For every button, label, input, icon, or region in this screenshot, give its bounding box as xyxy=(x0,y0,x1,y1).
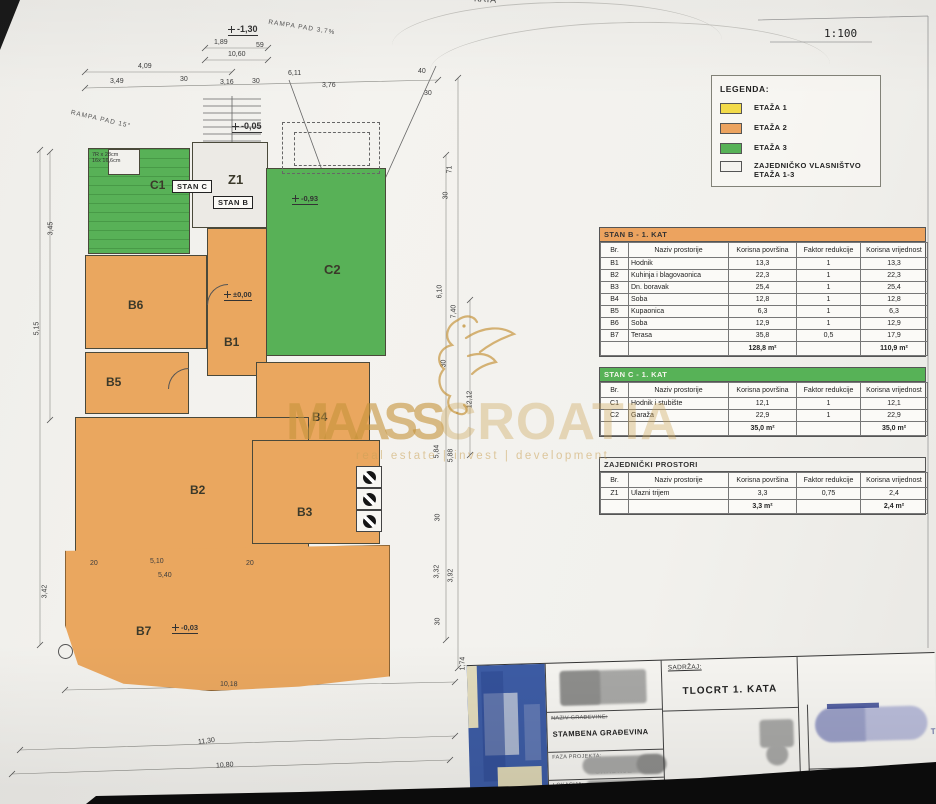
room-label-b5: B5 xyxy=(106,375,121,389)
table-header-cell: Korisna vrijednost xyxy=(861,383,928,398)
elevation-cross-icon xyxy=(228,26,235,33)
elevation-value: ±0,00 xyxy=(233,290,252,299)
room-label-c2: C2 xyxy=(324,262,341,277)
table-cell: Z1 xyxy=(601,488,629,500)
redacted-faza-dark xyxy=(636,754,667,775)
table-header-cell: Naziv prostorije xyxy=(629,243,729,258)
room-label-b6: B6 xyxy=(128,298,143,312)
room-label-b1: B1 xyxy=(224,335,239,349)
table-cell: C1 xyxy=(601,398,629,410)
dimension-label: 3,45 xyxy=(47,222,54,236)
utility-meter xyxy=(356,488,382,510)
floorplan-sheet: KATA 1:100 7R x 28cm 16x 16,6cm xyxy=(0,0,936,804)
table-cell: B3 xyxy=(601,282,629,294)
table-cell: B2 xyxy=(601,270,629,282)
table-cell xyxy=(629,342,729,356)
meter-dial-icon xyxy=(363,515,376,528)
table-cell: 35,8 xyxy=(729,330,797,342)
dimension-label: 59 xyxy=(256,42,264,49)
table-cell: 25,4 xyxy=(729,282,797,294)
legend-item: ZAJEDNIČKO VLASNIŠTVO ETAŽA 1-3 xyxy=(720,161,861,180)
room-label-b2: B2 xyxy=(190,483,205,497)
logo-patch xyxy=(524,704,542,760)
table-cell: 12,9 xyxy=(729,318,797,330)
sheet-title: TLOCRT 1. KATA xyxy=(662,683,797,698)
table-stan-c: STAN C - 1. KATBr.Naziv prostorijeKorisn… xyxy=(599,367,926,437)
dimension-label: 5,15 xyxy=(33,322,40,336)
table-cell: Ulazni trijem xyxy=(629,488,729,500)
room-label-b3: B3 xyxy=(297,505,312,519)
dimension-label: 30 xyxy=(434,514,441,522)
table-cell: B7 xyxy=(601,330,629,342)
legend-label-line1: ZAJEDNIČKO VLASNIŠTVO xyxy=(754,161,861,170)
redacted-stamp-dark xyxy=(815,707,866,742)
table-cell: 12,8 xyxy=(729,294,797,306)
table-cell: 1 xyxy=(797,258,861,270)
table-stan-b: STAN B - 1. KATBr.Naziv prostorijeKorisn… xyxy=(599,227,926,357)
content-divider xyxy=(663,707,798,712)
unit-tag-stan-b: STAN B xyxy=(213,196,253,209)
area-table: Br.Naziv prostorijeKorisna površinaFakto… xyxy=(600,242,928,356)
table-cell: 3,3 xyxy=(729,488,797,500)
table-cell: B5 xyxy=(601,306,629,318)
meter-dial-icon xyxy=(363,471,376,484)
room-label-b7: B7 xyxy=(136,624,151,638)
dimension-label: 30 xyxy=(440,360,447,368)
table-title: ZAJEDNIČKI PROSTORI xyxy=(600,458,925,472)
table-cell: Soba xyxy=(629,294,729,306)
room-label-z1: Z1 xyxy=(228,172,243,187)
table-cell xyxy=(797,342,861,356)
elevation-cross-icon xyxy=(232,123,239,130)
dimension-label: 30 xyxy=(442,192,449,200)
room-label-b4: B4 xyxy=(312,410,327,424)
company-logo-redacted xyxy=(467,664,549,801)
dimension-label: 12,12 xyxy=(466,391,473,409)
legend-label: ETAŽA 3 xyxy=(754,143,787,152)
table-cell: Terasa xyxy=(629,330,729,342)
table-cell: 17,9 xyxy=(861,330,928,342)
dimension-label: 40 xyxy=(418,68,426,75)
table-cell: C2 xyxy=(601,410,629,422)
table-cell: 1 xyxy=(797,318,861,330)
elevation-marker: ±0,00 xyxy=(224,290,252,301)
table-cell: 6,3 xyxy=(861,306,928,318)
utility-meter xyxy=(356,510,382,532)
table-cell: Kuhinja i blagovaonica xyxy=(629,270,729,282)
elevation-marker: -0,03 xyxy=(172,623,198,634)
table-cell: B4 xyxy=(601,294,629,306)
elevation-marker: -0,93 xyxy=(292,194,318,205)
table-common-areas: ZAJEDNIČKI PROSTORIBr.Naziv prostorijeKo… xyxy=(599,457,926,515)
table-cell: 13,3 xyxy=(861,258,928,270)
area-table: Br.Naziv prostorijeKorisna površinaFakto… xyxy=(600,382,928,436)
dimension-label: 30 xyxy=(434,618,441,626)
right-edge-text-fragment: T xyxy=(931,727,936,736)
table-header-cell: Korisna površina xyxy=(729,243,797,258)
dimension-label: 5,84 xyxy=(433,445,440,459)
dimension-label: 20 xyxy=(246,560,254,567)
table-title: STAN B - 1. KAT xyxy=(600,228,925,242)
elevation-marker: -0,05 xyxy=(232,121,262,133)
table-header-cell: Korisna vrijednost xyxy=(861,473,928,488)
legend-label: ZAJEDNIČKO VLASNIŠTVO ETAŽA 1-3 xyxy=(754,161,861,180)
table-cell xyxy=(629,422,729,436)
table-cell: 12,9 xyxy=(861,318,928,330)
elevation-value: -1,30 xyxy=(237,24,258,34)
table-cell: 1 xyxy=(797,294,861,306)
table-cell: 1 xyxy=(797,306,861,318)
dimension-label: 10,60 xyxy=(228,51,246,58)
elevation-value: -0,93 xyxy=(301,194,318,203)
elevation-value: -0,03 xyxy=(181,623,198,632)
drawing-scale: 1:100 xyxy=(824,27,857,40)
dimension-label: 5,88 xyxy=(447,449,454,463)
table-cell: Hodnik xyxy=(629,258,729,270)
dimension-label: 6,10 xyxy=(436,285,443,299)
field-divider xyxy=(548,749,663,753)
table-cell xyxy=(601,422,629,436)
logo-patch xyxy=(481,671,506,782)
table-header-cell: Korisna vrijednost xyxy=(861,243,928,258)
table-cell: Hodnik i stubište xyxy=(629,398,729,410)
redacted-investor-dark xyxy=(560,670,601,705)
elevation-cross-icon xyxy=(292,195,299,202)
dimension-label: 3,76 xyxy=(322,82,336,89)
table-cell: 2,4 m² xyxy=(861,500,928,514)
stair-dimension-note: 7R x 28cm 16x 16,6cm xyxy=(92,152,120,165)
redacted-content-round xyxy=(766,743,789,766)
table-header-cell: Br. xyxy=(601,473,629,488)
table-cell: 128,8 m² xyxy=(729,342,797,356)
table-header-cell: Br. xyxy=(601,243,629,258)
table-cell: 22,3 xyxy=(729,270,797,282)
legend-swatch-etaza2 xyxy=(720,123,742,134)
room-b6 xyxy=(85,255,207,349)
elevation-value: -0,05 xyxy=(241,121,262,131)
table-cell: 1 xyxy=(797,398,861,410)
table-cell: 3,3 m² xyxy=(729,500,797,514)
dimension-label: 3,92 xyxy=(447,569,454,583)
dimension-label: 5,10 xyxy=(150,558,164,565)
table-cell: 22,3 xyxy=(861,270,928,282)
room-b7-terrace xyxy=(65,545,390,691)
table-cell: 110,9 m² xyxy=(861,342,928,356)
legend-swatch-etaza1 xyxy=(720,103,742,114)
table-cell: 12,1 xyxy=(861,398,928,410)
table-cell: Kupaonica xyxy=(629,306,729,318)
dimension-label: 30 xyxy=(180,76,188,83)
table-cell: 13,3 xyxy=(729,258,797,270)
legend-label: ETAŽA 2 xyxy=(754,123,787,132)
table-cell xyxy=(601,342,629,356)
dimension-label: 3,32 xyxy=(433,565,440,579)
dimension-label: 71 xyxy=(446,166,453,174)
stair-note-line2: 16x 16,6cm xyxy=(92,158,120,164)
titleblock-fields-cell: NAZIV GRAĐEVINE: STAMBENA GRAĐEVINA FAZA… xyxy=(545,661,665,799)
table-cell: 22,9 xyxy=(729,410,797,422)
table-header-cell: Faktor redukcije xyxy=(797,243,861,258)
table-cell: 1 xyxy=(797,270,861,282)
table-cell: Dn. boravak xyxy=(629,282,729,294)
dimension-label: 6,11 xyxy=(288,70,301,77)
elevation-marker: -1,30 xyxy=(228,24,258,36)
dimension-label: 5,40 xyxy=(158,572,172,579)
dimension-label: 10,80 xyxy=(216,761,234,769)
dimension-label: 30 xyxy=(424,90,432,97)
table-cell xyxy=(601,500,629,514)
legend-item: ETAŽA 1 xyxy=(720,103,787,114)
dimension-label: 1,74 xyxy=(459,657,466,671)
dimension-label: 3,42 xyxy=(41,585,48,599)
dimension-label: 1,89 xyxy=(214,39,228,46)
utility-meter xyxy=(356,466,382,488)
room-label-c1: C1 xyxy=(150,178,165,192)
table-cell: 12,8 xyxy=(861,294,928,306)
table-cell: 1 xyxy=(797,282,861,294)
table-cell: Soba xyxy=(629,318,729,330)
dimension-label: 3,16 xyxy=(220,79,234,86)
table-cell: 2,4 xyxy=(861,488,928,500)
ramp-dashed-outline-inner xyxy=(294,132,370,166)
table-cell: 35,0 m² xyxy=(729,422,797,436)
dimension-label: 10,18 xyxy=(220,681,238,688)
table-cell: 6,3 xyxy=(729,306,797,318)
building-name: STAMBENA GRAĐEVINA xyxy=(553,727,649,739)
table-cell xyxy=(797,500,861,514)
table-cell: 0,75 xyxy=(797,488,861,500)
legend-item: ETAŽA 3 xyxy=(720,143,787,154)
table-header-cell: Naziv prostorije xyxy=(629,383,729,398)
legend-swatch-common xyxy=(720,161,742,172)
table-cell: 0,5 xyxy=(797,330,861,342)
table-cell: B6 xyxy=(601,318,629,330)
logo-patch xyxy=(467,666,479,728)
table-cell: 22,9 xyxy=(861,410,928,422)
table-cell xyxy=(629,500,729,514)
table-header-cell: Naziv prostorije xyxy=(629,473,729,488)
table-header-cell: Faktor redukcije xyxy=(797,473,861,488)
field-label-naziv: NAZIV GRAĐEVINE: xyxy=(551,714,608,722)
elevation-cross-icon xyxy=(172,624,179,631)
legend-title: LEGENDA: xyxy=(720,84,880,94)
dimension-label: 20 xyxy=(90,560,98,567)
legend-item: ETAŽA 2 xyxy=(720,123,787,134)
table-cell: 12,1 xyxy=(729,398,797,410)
table-header-cell: Faktor redukcije xyxy=(797,383,861,398)
table-cell: Garaža xyxy=(629,410,729,422)
dimension-label: 7,40 xyxy=(450,305,457,319)
table-cell: 25,4 xyxy=(861,282,928,294)
legend: LEGENDA: ETAŽA 1 ETAŽA 2 ETAŽA 3 ZAJEDNI… xyxy=(711,75,881,187)
legend-label-line2: ETAŽA 1-3 xyxy=(754,170,795,179)
table-cell: B1 xyxy=(601,258,629,270)
sadrzaj-label: SADRŽAJ: xyxy=(668,664,702,672)
table-cell: 1 xyxy=(797,410,861,422)
table-cell xyxy=(797,422,861,436)
table-header-cell: Korisna površina xyxy=(729,473,797,488)
meter-dial-icon xyxy=(363,493,376,506)
unit-tag-stan-c: STAN C xyxy=(172,180,212,193)
table-header-cell: Br. xyxy=(601,383,629,398)
area-table: Br.Naziv prostorijeKorisna površinaFakto… xyxy=(600,472,928,514)
elevation-cross-icon xyxy=(224,291,231,298)
table-cell: 35,0 m² xyxy=(861,422,928,436)
dimension-label: 3,49 xyxy=(110,78,124,85)
legend-label: ETAŽA 1 xyxy=(754,103,787,112)
table-title: STAN C - 1. KAT xyxy=(600,368,925,382)
legend-swatch-etaza3 xyxy=(720,143,742,154)
dimension-label: 4,09 xyxy=(138,63,152,70)
plan-circle-symbol xyxy=(58,644,73,659)
dimension-label: 30 xyxy=(252,78,260,85)
table-header-cell: Korisna površina xyxy=(729,383,797,398)
field-divider xyxy=(547,709,662,713)
